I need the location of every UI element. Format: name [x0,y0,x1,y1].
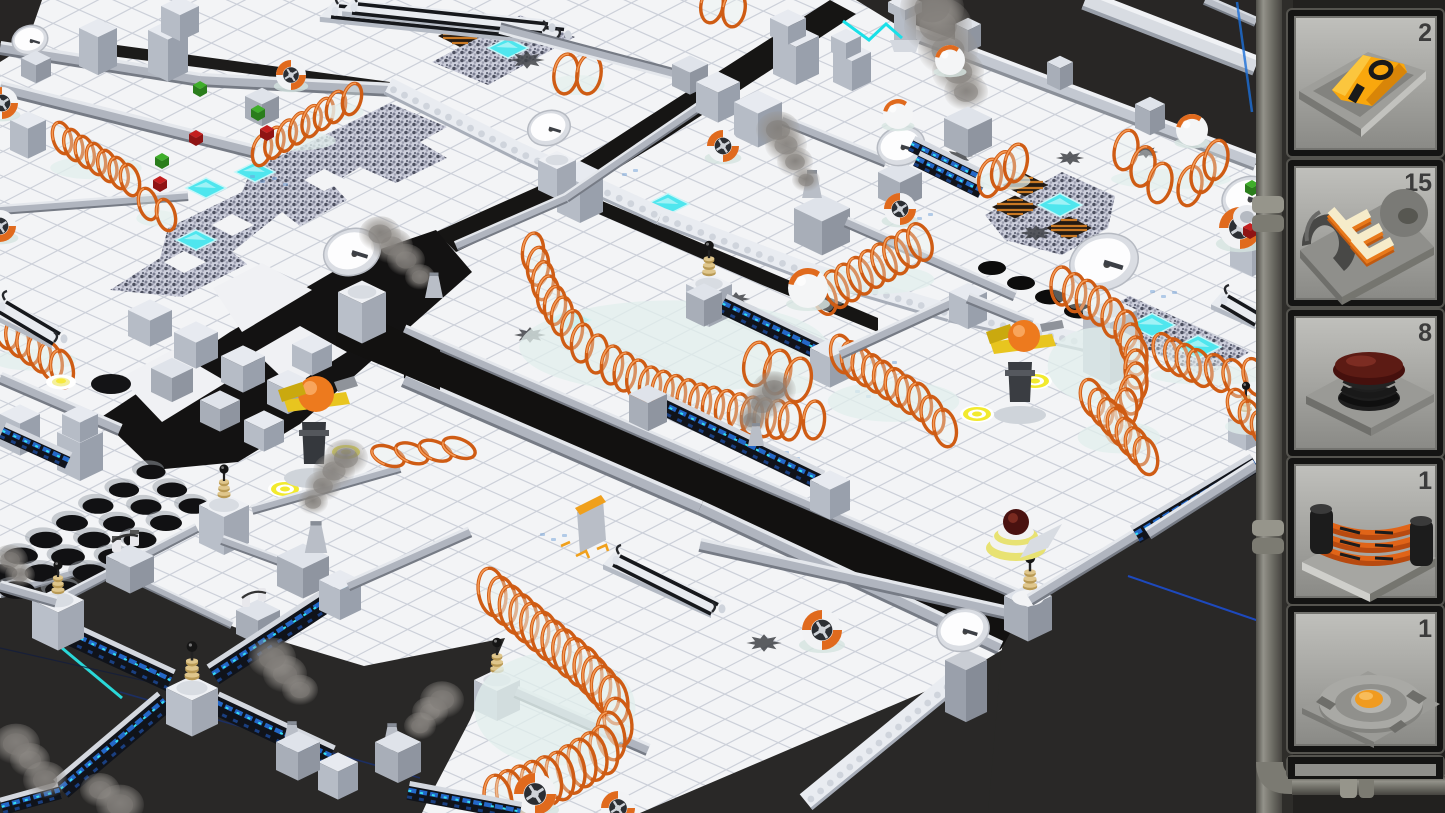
svg-text:1: 1 [1418,467,1432,495]
svg-text:1: 1 [1418,615,1432,643]
svg-text:2: 2 [1418,19,1432,47]
svg-text:8: 8 [1418,319,1432,347]
